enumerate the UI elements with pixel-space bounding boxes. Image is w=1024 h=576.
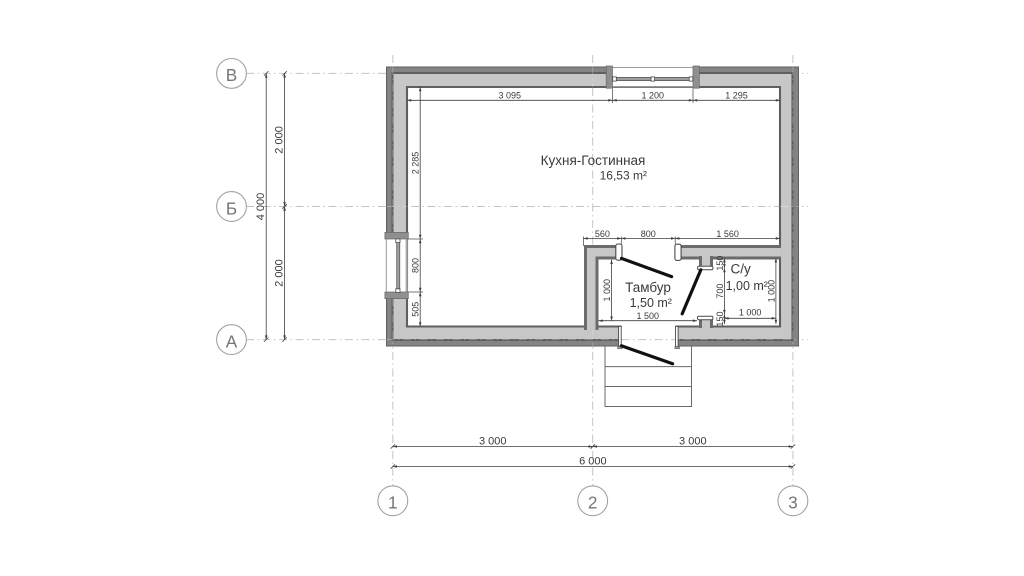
svg-text:1: 1: [388, 493, 398, 513]
svg-text:2 285: 2 285: [411, 152, 421, 175]
svg-text:А: А: [226, 331, 238, 351]
svg-text:560: 560: [595, 229, 610, 239]
svg-text:1,00 m²: 1,00 m²: [726, 279, 768, 293]
svg-text:Б: Б: [226, 198, 237, 218]
svg-text:Тамбур: Тамбур: [625, 280, 671, 295]
svg-text:1 295: 1 295: [725, 91, 748, 101]
svg-text:3 000: 3 000: [479, 436, 507, 448]
svg-text:16,53 m²: 16,53 m²: [600, 168, 647, 182]
svg-text:4 000: 4 000: [255, 193, 267, 221]
svg-text:700: 700: [715, 284, 725, 299]
svg-text:3: 3: [788, 493, 798, 513]
svg-text:2 000: 2 000: [274, 126, 286, 154]
svg-text:1 000: 1 000: [739, 307, 762, 317]
svg-text:1 560: 1 560: [716, 229, 739, 239]
svg-text:3 000: 3 000: [679, 436, 707, 448]
svg-text:С/у: С/у: [730, 261, 751, 276]
svg-text:6 000: 6 000: [579, 456, 607, 468]
svg-text:3 095: 3 095: [498, 91, 521, 101]
svg-text:150: 150: [715, 312, 725, 327]
svg-text:800: 800: [411, 258, 421, 273]
svg-text:800: 800: [641, 229, 656, 239]
svg-text:505: 505: [411, 302, 421, 317]
svg-text:150: 150: [715, 256, 725, 271]
svg-text:1 200: 1 200: [641, 91, 664, 101]
svg-text:1 000: 1 000: [602, 279, 612, 302]
svg-text:2: 2: [588, 493, 598, 513]
svg-text:1 500: 1 500: [636, 311, 659, 321]
svg-text:Кухня-Гостинная: Кухня-Гостинная: [541, 153, 646, 168]
svg-text:2 000: 2 000: [274, 259, 286, 287]
svg-text:В: В: [226, 65, 237, 85]
svg-text:1,50 m²: 1,50 m²: [630, 296, 672, 310]
